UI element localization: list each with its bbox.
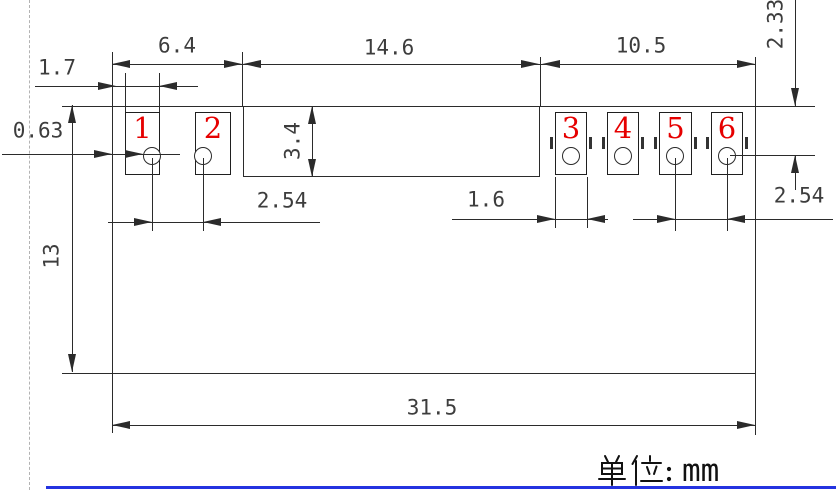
extension-line-hole-1 — [152, 158, 153, 231]
arrow-2-33-top — [791, 88, 799, 106]
pad-2-number: 2 — [204, 114, 222, 143]
pad-4: 4 — [607, 112, 639, 175]
pad-5-right-tick — [694, 137, 697, 149]
pad-1-number: 1 — [133, 114, 151, 143]
arrow-3-4-bottom — [308, 159, 316, 177]
unit-note-mm: mm — [682, 456, 719, 487]
dimension-line-31-5 — [112, 425, 755, 426]
reference-line-hole-center — [730, 155, 815, 156]
pad-6-right-tick — [745, 137, 748, 149]
arrow-2-33-bottom — [791, 155, 799, 173]
dimension-line-1-6 — [452, 219, 608, 220]
dim-1-6: 1.6 — [467, 190, 505, 211]
arrow-1-6-left — [537, 215, 555, 223]
pad-4-hole — [614, 147, 632, 165]
pad-4-right-tick — [641, 137, 644, 149]
pad-3-number: 3 — [562, 114, 580, 143]
top-dimension-line — [112, 64, 755, 65]
pad-6-number: 6 — [718, 114, 736, 143]
pad-5-number: 5 — [666, 114, 684, 143]
arrow-13-top — [68, 105, 76, 123]
body-right-edge-line — [755, 57, 756, 435]
arrow-1-7-right — [159, 82, 177, 90]
arrow-10-5-left — [542, 60, 560, 68]
arrow-2-54-left-b — [203, 218, 221, 226]
arrow-1-6-right — [587, 215, 605, 223]
arrow-1-7-left — [98, 82, 116, 90]
unit-note-chinese-glyphs — [596, 453, 678, 487]
dim-10-5: 10.5 — [616, 36, 667, 57]
arrow-31-5-right — [737, 421, 755, 429]
dim-13: 13 — [42, 243, 63, 268]
arrow-10-5-right — [737, 60, 755, 68]
pad-3-right-tick — [589, 137, 592, 149]
dimension-line-0-63 — [2, 154, 180, 155]
arrow-31-5-left — [112, 421, 130, 429]
dim-2-33: 2.33 — [766, 0, 787, 49]
arrow-14-6-right — [521, 60, 539, 68]
pad-3-hole — [562, 147, 580, 165]
pad-6-left-tick — [706, 137, 709, 149]
dashed-margin-line — [29, 0, 30, 490]
pad-2: 2 — [195, 112, 231, 175]
body-left-edge-line — [112, 52, 113, 433]
extension-line-1-7-b — [159, 73, 160, 112]
unit-note: mm — [596, 453, 719, 487]
arrow-2-54-right-b — [727, 215, 745, 223]
arrow-0-63-b — [125, 150, 143, 158]
pad-3-left-tick — [550, 137, 553, 149]
dim-31-5: 31.5 — [407, 398, 458, 419]
pad-4-number: 4 — [614, 114, 632, 143]
pad-5-left-tick — [654, 137, 657, 149]
dimension-line-13 — [72, 105, 73, 372]
extension-line-1-7-a — [125, 73, 126, 112]
pad-3: 3 — [555, 112, 587, 175]
arrow-6-4-left — [112, 60, 130, 68]
arrow-2-54-left-a — [134, 218, 152, 226]
pad-1: 1 — [125, 112, 160, 175]
body-bottom-line — [62, 373, 756, 374]
dim-2-54-right: 2.54 — [774, 186, 825, 207]
arrow-6-4-right — [224, 60, 242, 68]
dim-14-6: 14.6 — [364, 38, 415, 59]
arrow-0-63-a — [94, 150, 112, 158]
extension-line-1-6-a — [555, 177, 556, 228]
arrow-3-4-top — [308, 106, 316, 124]
arrow-13-bottom — [68, 354, 76, 372]
dim-2-54-left: 2.54 — [257, 191, 308, 212]
pad-4-left-tick — [602, 137, 605, 149]
dim-1-7: 1.7 — [38, 58, 76, 79]
arrow-2-54-right-a — [657, 215, 675, 223]
dim-6-4: 6.4 — [158, 36, 196, 57]
dimension-drawing: 1 2 3 4 5 6 6.4 14.6 10.5 1.7 0.63 — [0, 0, 836, 490]
dim-0-63: 0.63 — [13, 121, 64, 142]
dim-3-4: 3.4 — [283, 122, 304, 160]
extension-line-hole-5 — [675, 158, 676, 231]
arrow-14-6-left — [243, 60, 261, 68]
